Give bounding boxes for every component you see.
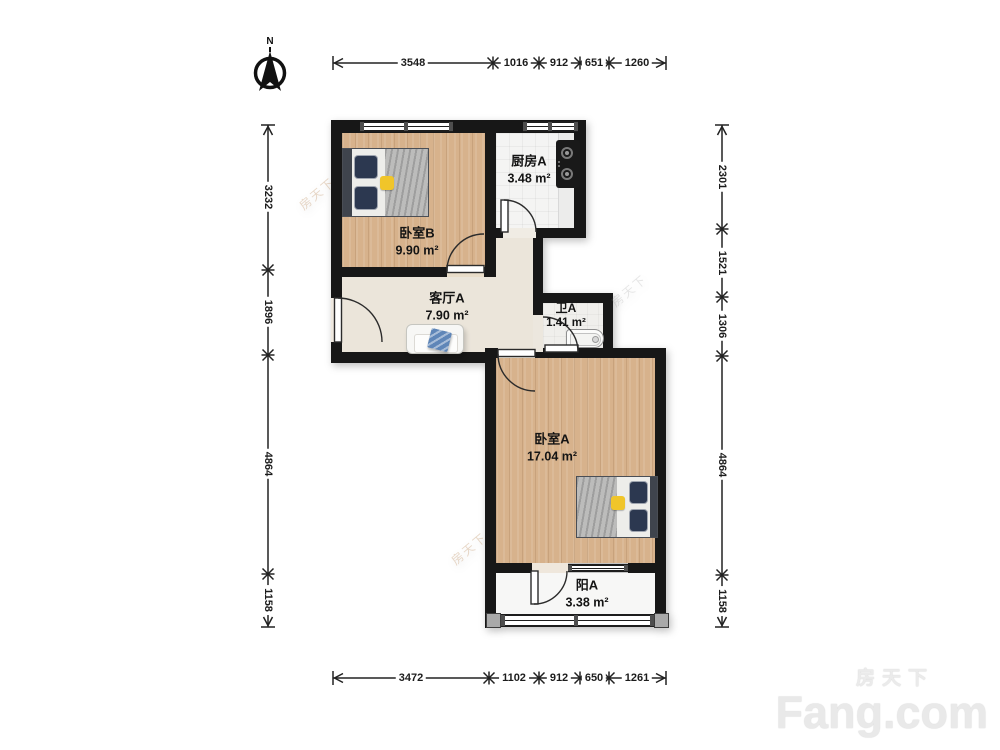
room-area: 3.38 m² [565,595,608,612]
dim-label: 3548 [398,57,428,69]
dim-label: 3472 [396,672,426,684]
room-name: 卫A [546,301,586,316]
room-area: 9.90 m² [395,243,438,260]
room-name: 阳A [565,577,608,595]
brand-en: Fang.com [775,690,988,736]
bedroom-b-door-leaf [447,266,484,273]
door-swings [0,0,1000,750]
dim-label: 1158 [716,586,728,616]
room-area: 1.41 m² [546,316,586,331]
dim-label: 1260 [622,57,652,69]
dim-label: 1896 [262,297,274,327]
dim-label: 912 [547,672,571,684]
dim-label: 650 [582,672,606,684]
floorplan-canvas: 卧室B 9.90 m² 厨房A 3.48 m² 客厅A 7.90 m² 卫A 1… [0,0,1000,750]
dim-label: 4864 [262,449,274,479]
room-name: 客厅A [425,290,468,308]
bedroom-a-door-arc [498,354,535,391]
room-name: 厨房A [507,153,550,171]
dim-label: 651 [582,57,606,69]
floorplan: 卧室B 9.90 m² 厨房A 3.48 m² 客厅A 7.90 m² 卫A 1… [0,0,1000,750]
dim-label: 4864 [716,450,728,480]
kitchen-door-arc [504,200,536,232]
dim-label: 2301 [716,162,728,192]
room-area: 3.48 m² [507,171,550,188]
entry-door-arc [338,298,382,342]
dim-label: 1261 [622,672,652,684]
dim-label: 1158 [262,585,274,615]
dim-label: 3232 [262,182,274,212]
room-label-living: 客厅A 7.90 m² [425,290,468,325]
kitchen-door-leaf [501,200,508,232]
bedroom-a-door-leaf [498,350,535,357]
bathroom-door-leaf [545,345,578,352]
room-label-bath: 卫A 1.41 m² [546,301,586,331]
room-area: 17.04 m² [527,449,577,466]
room-label-balcony: 阳A 3.38 m² [565,577,608,612]
north-label: N [246,36,294,47]
dim-label: 1102 [499,672,529,684]
balcony-door-leaf [531,571,538,604]
dim-label: 912 [547,57,571,69]
room-name: 卧室A [527,431,577,449]
brand-cn: 房天下 [856,663,934,690]
entry-door-leaf [335,298,342,342]
room-name: 卧室B [395,225,438,243]
dim-label: 1016 [501,57,531,69]
dim-label: 1306 [716,311,728,341]
balcony-door-arc [534,571,567,604]
room-label-bedroom-a: 卧室A 17.04 m² [527,431,577,466]
dim-label: 1521 [716,248,728,278]
room-area: 7.90 m² [425,308,468,325]
dimension-line-right [712,120,732,632]
room-label-kitchen: 厨房A 3.48 m² [507,153,550,188]
north-indicator: N [246,36,294,100]
room-label-bedroom-b: 卧室B 9.90 m² [395,225,438,260]
compass-icon [248,47,292,97]
